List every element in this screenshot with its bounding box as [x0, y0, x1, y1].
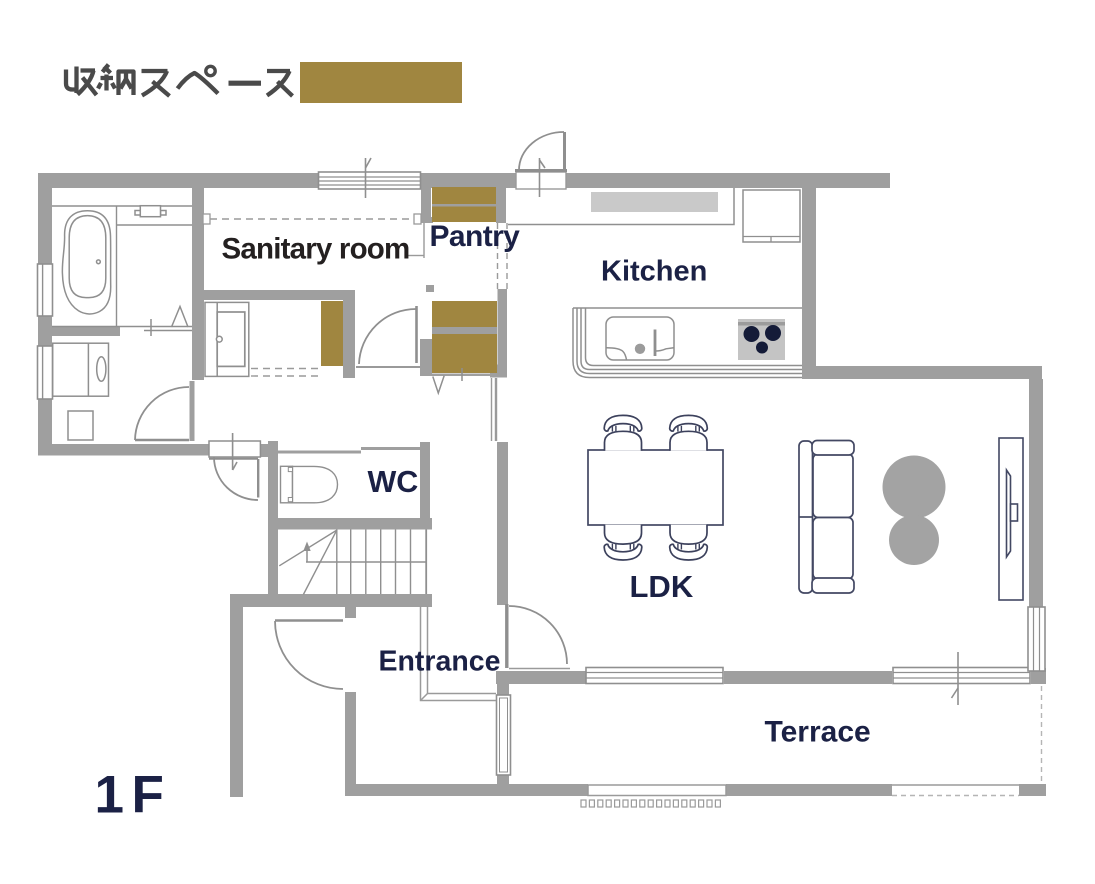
svg-text:Entrance: Entrance [379, 646, 501, 678]
svg-text:Terrace: Terrace [765, 716, 871, 749]
svg-text:LDK: LDK [630, 569, 694, 604]
svg-text:Pantry: Pantry [430, 220, 521, 253]
svg-text:WC: WC [368, 465, 419, 499]
svg-text:1F: 1F [95, 766, 172, 825]
svg-text:Kitchen: Kitchen [601, 256, 707, 288]
svg-text:Sanitary room: Sanitary room [222, 233, 410, 266]
